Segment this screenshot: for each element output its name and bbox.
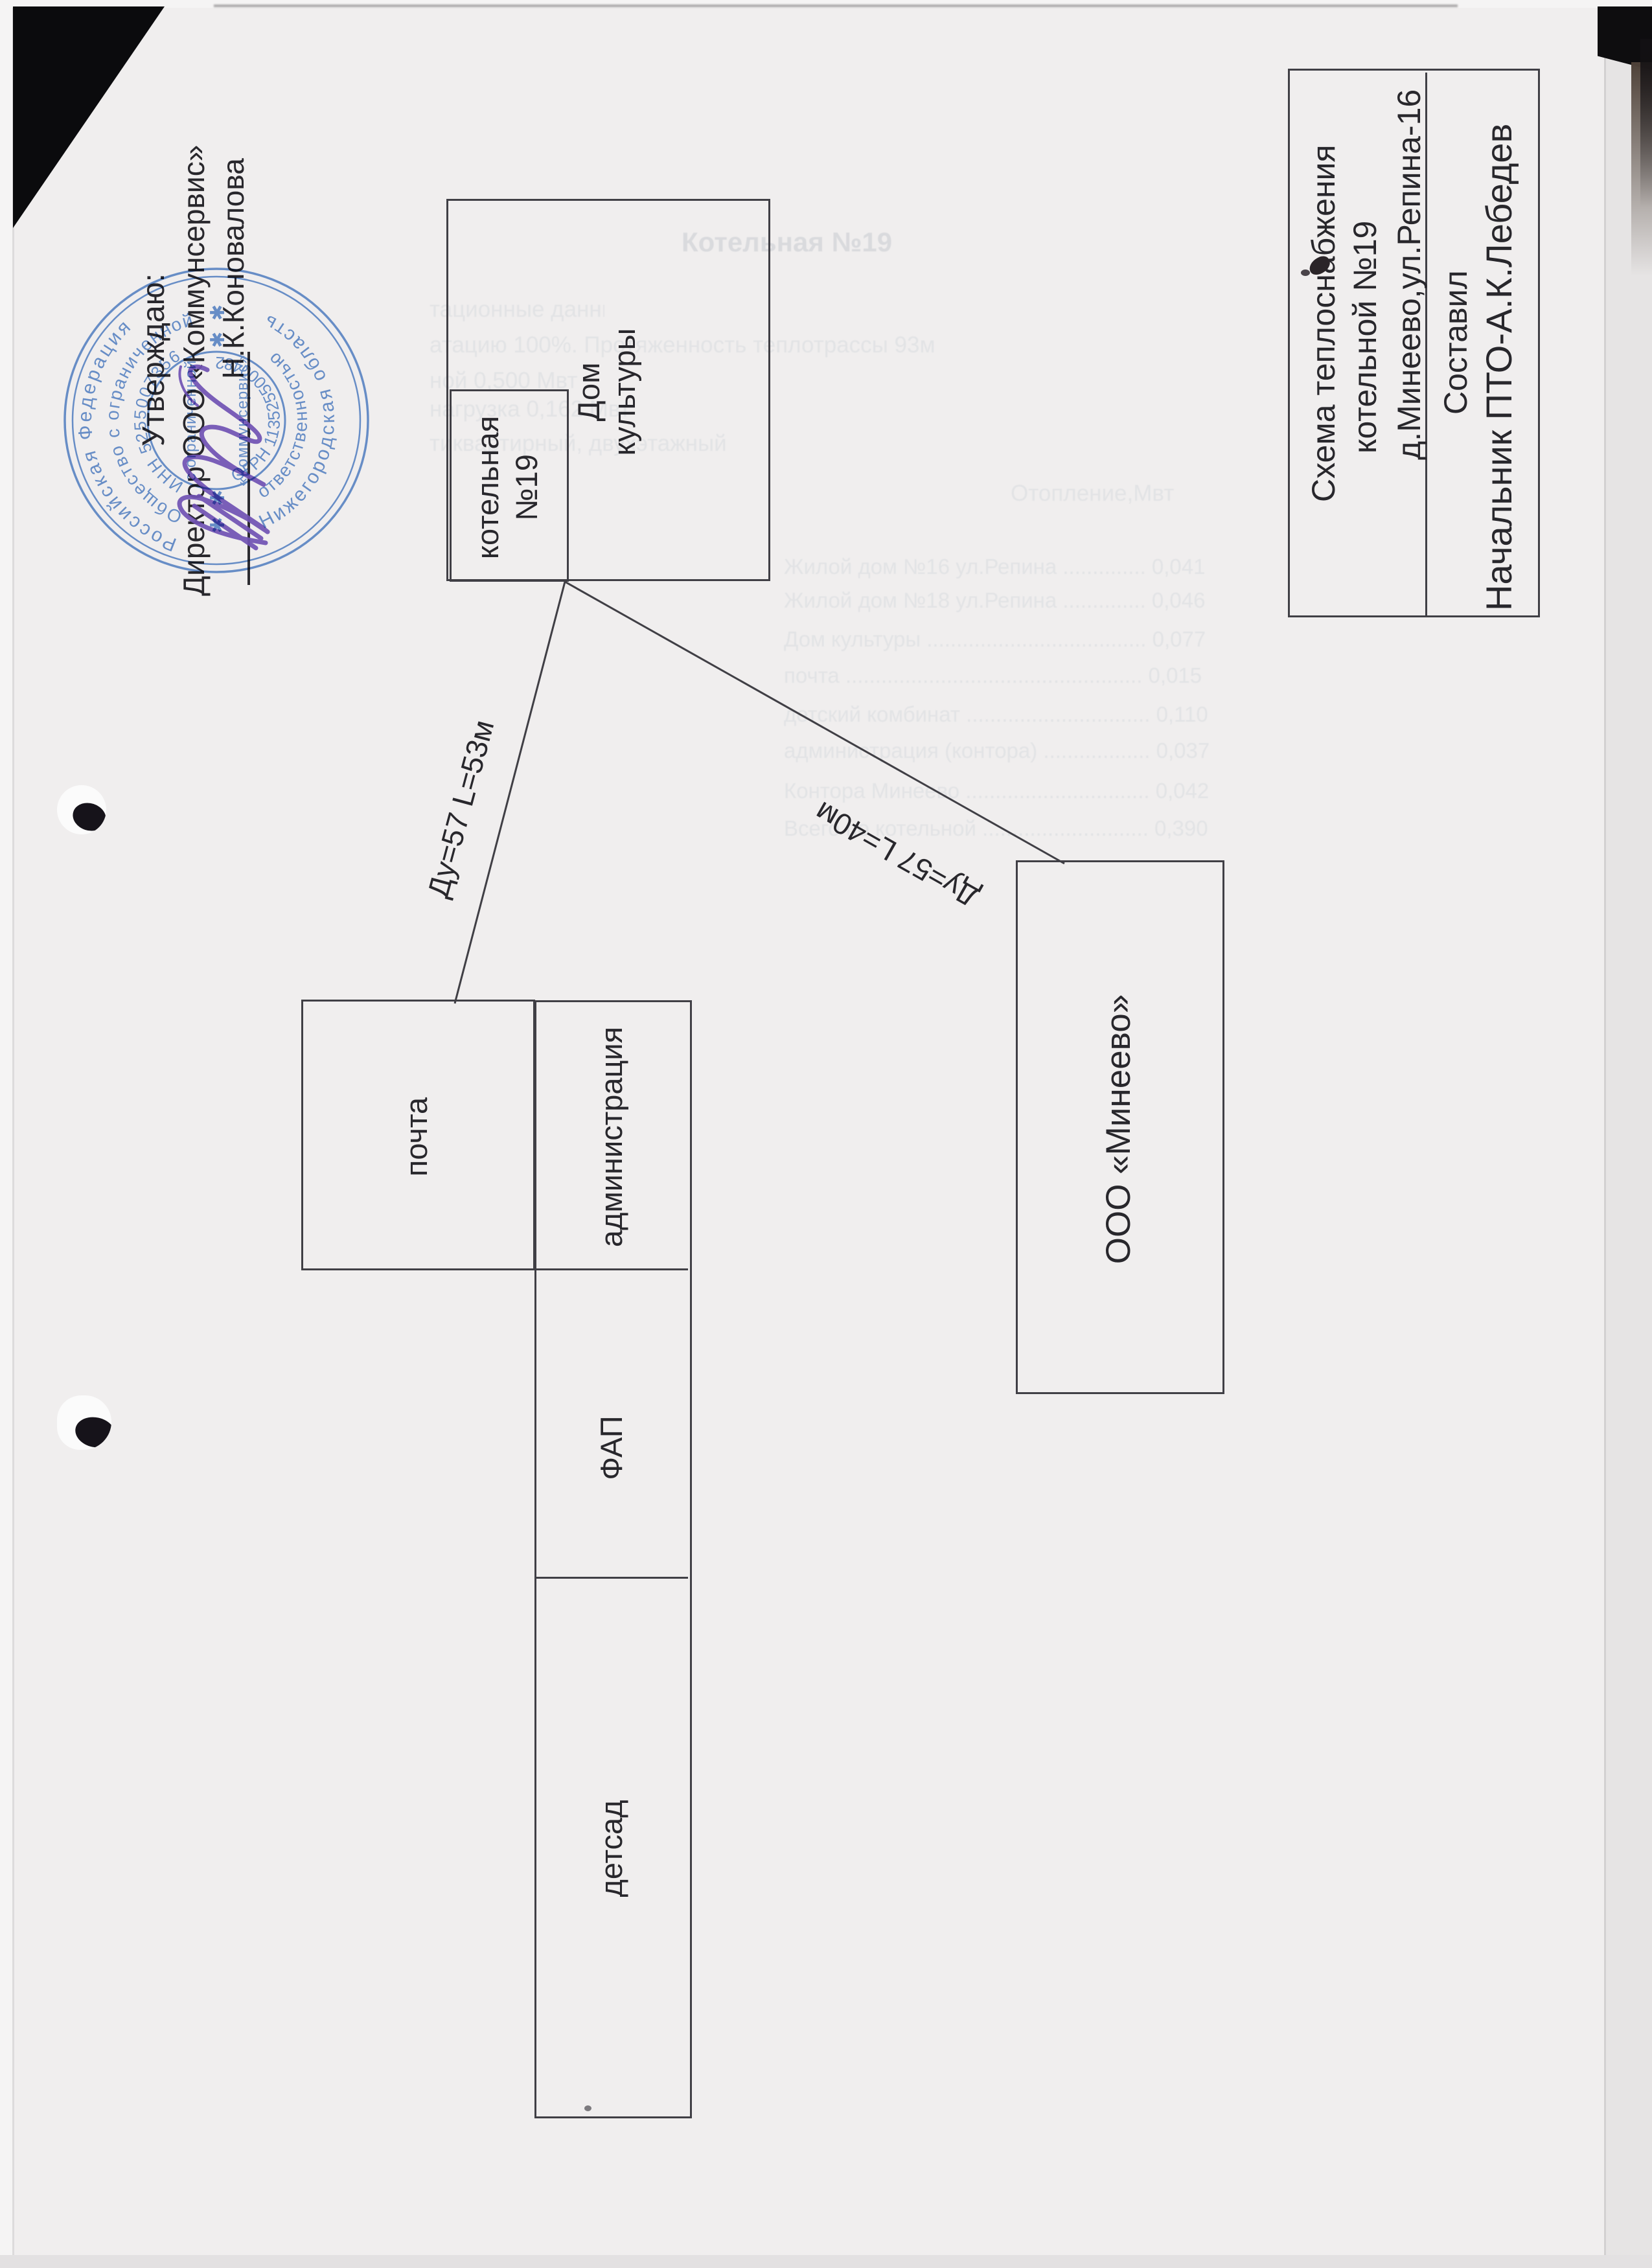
svg-text:«Коммунсервис»: «Коммунсервис» (234, 354, 251, 486)
svg-text:✱: ✱ (207, 304, 229, 321)
svg-text:✱: ✱ (207, 332, 229, 348)
svg-text:✱: ✱ (207, 517, 229, 533)
svg-text:с ограниченной: с ограниченной (182, 360, 200, 481)
svg-text:✱: ✱ (207, 490, 229, 506)
